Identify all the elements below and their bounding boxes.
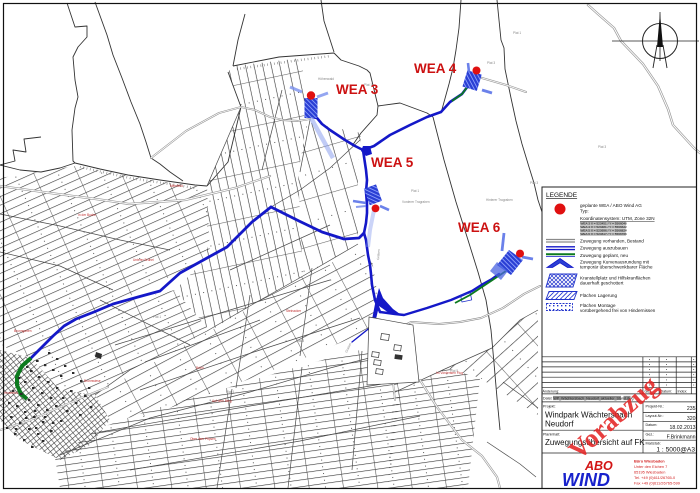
svg-text:Plat 3: Plat 3 bbox=[530, 181, 538, 185]
svg-text:Vorderer Tragraben: Vorderer Tragraben bbox=[402, 200, 430, 204]
svg-text:temporär überschwenkbarer Fläc: temporär überschwenkbarer Fläche bbox=[580, 265, 653, 270]
svg-text:Typ:: Typ: bbox=[580, 209, 589, 214]
svg-text:Plat 4: Plat 4 bbox=[226, 390, 234, 394]
svg-text:dauerhaft geschottert: dauerhaft geschottert bbox=[580, 281, 624, 286]
svg-text:Planinhalt:: Planinhalt: bbox=[543, 432, 560, 436]
svg-text:Plat 3: Plat 3 bbox=[487, 61, 495, 65]
svg-text:1 : 5000@A3: 1 : 5000@A3 bbox=[656, 447, 695, 454]
svg-text:F.Brinkmann: F.Brinkmann bbox=[667, 434, 696, 440]
svg-text:geplante WEA / ABO Wind AG: geplante WEA / ABO Wind AG bbox=[580, 203, 642, 208]
svg-text:Plat 1: Plat 1 bbox=[153, 315, 161, 319]
svg-text:Unterer Brühel: Unterer Brühel bbox=[133, 258, 154, 262]
svg-text:235: 235 bbox=[687, 406, 696, 412]
svg-text:Zuwegung auszubauen: Zuwegung auszubauen bbox=[580, 246, 628, 251]
svg-text:Neudorf: Neudorf bbox=[545, 420, 574, 429]
svg-text:Maßstab:: Maßstab: bbox=[646, 442, 661, 446]
svg-text:Gez.:: Gez.: bbox=[646, 432, 655, 436]
svg-text:Steinacker: Steinacker bbox=[286, 309, 302, 313]
svg-text:Plat 1: Plat 1 bbox=[513, 31, 521, 35]
svg-text:Flächen Lagerung: Flächen Lagerung bbox=[580, 293, 617, 298]
svg-text:In der Buche: In der Buche bbox=[78, 213, 96, 217]
svg-text:LEGENDE: LEGENDE bbox=[546, 192, 578, 199]
svg-text:WEA 5: WEA 5 bbox=[371, 155, 414, 170]
svg-text:Änderung:: Änderung: bbox=[543, 389, 560, 393]
svg-text:18.02.2013: 18.02.2013 bbox=[670, 425, 696, 431]
svg-text:Koordinatensystem: UTM, Zone 3: Koordinatensystem: UTM, Zone 32N bbox=[580, 216, 655, 221]
svg-text:Datum:: Datum: bbox=[646, 423, 658, 427]
svg-text:Brunngarten: Brunngarten bbox=[14, 329, 32, 333]
svg-text:WEA 3: WEA 3 bbox=[336, 82, 379, 97]
svg-text:Hinterer Tragraben: Hinterer Tragraben bbox=[486, 198, 513, 202]
svg-text:Plat 3: Plat 3 bbox=[598, 145, 606, 149]
svg-text:65195 Wiesbaden: 65195 Wiesbaden bbox=[634, 470, 665, 475]
svg-text:Büro Wiesbaden: Büro Wiesbaden bbox=[634, 459, 665, 464]
svg-text:Brunnwiese: Brunnwiese bbox=[84, 379, 101, 383]
svg-text:Brühl: Brühl bbox=[196, 366, 204, 370]
svg-text:Index:: Index: bbox=[678, 389, 688, 393]
svg-text:Projekt:: Projekt: bbox=[543, 404, 556, 408]
svg-text:WEA 4: WEA 4 bbox=[414, 61, 457, 76]
svg-text:Hinterfeld: Hinterfeld bbox=[4, 391, 18, 395]
svg-text:320: 320 bbox=[687, 416, 696, 422]
svg-text:Auf dem Berg: Auf dem Berg bbox=[212, 399, 232, 403]
svg-text:Plat 1: Plat 1 bbox=[411, 189, 419, 193]
svg-text:WEA 6: WEA 6 bbox=[458, 220, 501, 235]
svg-text:Im Vordersten Flug: Im Vordersten Flug bbox=[436, 371, 463, 375]
svg-text:Layout-Nr.:: Layout-Nr.: bbox=[646, 414, 664, 418]
svg-text:Höhenwald: Höhenwald bbox=[318, 77, 334, 81]
svg-text:Fax +49 (0)611/26765-599: Fax +49 (0)611/26765-599 bbox=[634, 481, 680, 486]
svg-text:Zuwegung vorhanden, Bestand: Zuwegung vorhanden, Bestand bbox=[580, 239, 644, 244]
svg-text:WEA 6 X = 524617 / Y = 556676: WEA 6 X = 524617 / Y = 5566766 bbox=[581, 232, 628, 236]
svg-text:vorübergehend frei von Hindern: vorübergehend frei von Hindernissen bbox=[580, 308, 656, 313]
svg-text:Unter den Eichen 7: Unter den Eichen 7 bbox=[634, 464, 667, 469]
svg-text:WIND: WIND bbox=[562, 470, 610, 490]
svg-text:Zuwegung geplant, neu: Zuwegung geplant, neu bbox=[580, 253, 628, 258]
svg-text:Mittelfeld: Mittelfeld bbox=[170, 184, 183, 188]
svg-text:Plat 3: Plat 3 bbox=[296, 339, 304, 343]
svg-text:Ober dem Pfipsen: Ober dem Pfipsen bbox=[190, 437, 216, 441]
svg-text:Tel. +49 (0)611/26765-0: Tel. +49 (0)611/26765-0 bbox=[634, 475, 676, 480]
